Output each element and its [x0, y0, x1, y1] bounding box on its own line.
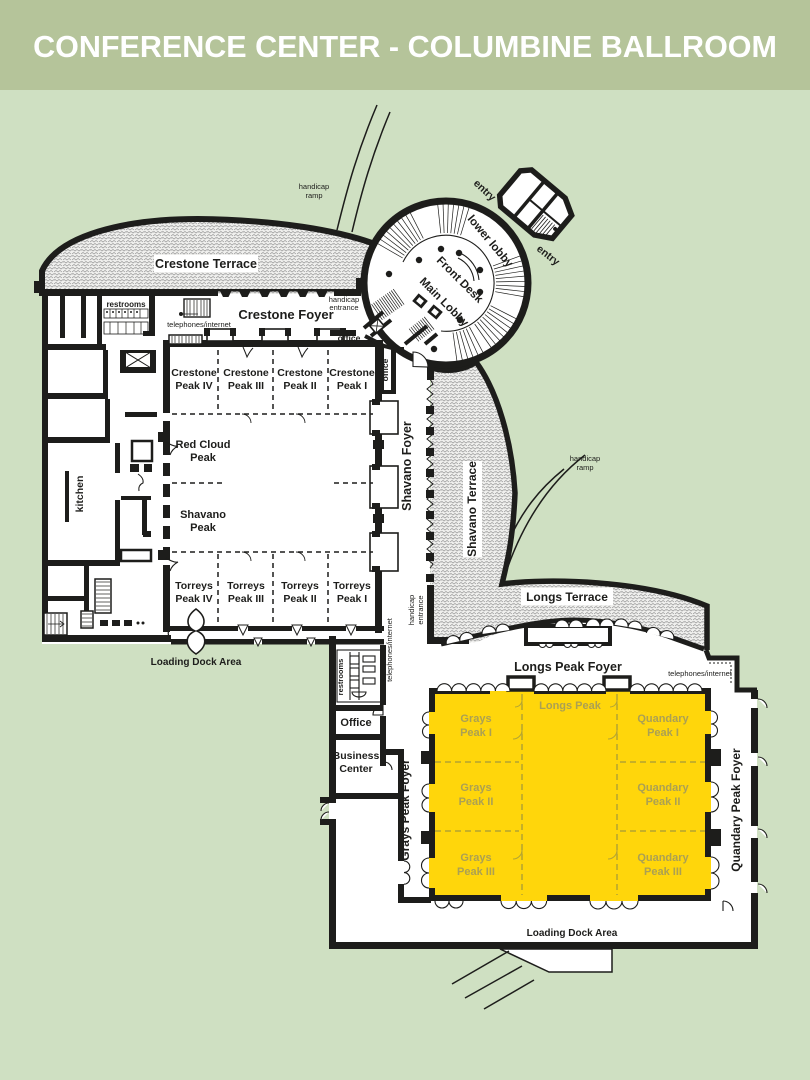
svg-text:Torreys: Torreys	[175, 580, 213, 592]
svg-text:Grays: Grays	[460, 713, 491, 725]
svg-text:Crestone Foyer: Crestone Foyer	[238, 307, 333, 322]
svg-text:Peak III: Peak III	[228, 593, 264, 605]
svg-text:entrance: entrance	[329, 303, 358, 312]
svg-text:CONFERENCE CENTER - COLUMBINE: CONFERENCE CENTER - COLUMBINE BALLROOM	[33, 30, 777, 64]
svg-text:Peak IV: Peak IV	[175, 380, 212, 392]
svg-text:Crestone: Crestone	[171, 367, 217, 379]
svg-text:Peak I: Peak I	[337, 593, 367, 605]
svg-text:Torreys: Torreys	[227, 580, 265, 592]
svg-text:Longs Peak: Longs Peak	[539, 700, 602, 712]
svg-text:Quandary: Quandary	[637, 713, 689, 725]
svg-text:Peak II: Peak II	[646, 796, 681, 808]
svg-text:telephones/internet: telephones/internet	[385, 617, 394, 682]
svg-text:Crestone: Crestone	[329, 367, 375, 379]
svg-text:telephones/internet: telephones/internet	[167, 320, 232, 329]
svg-text:handicap: handicap	[299, 182, 329, 191]
svg-text:restrooms: restrooms	[336, 659, 345, 696]
svg-text:Peak III: Peak III	[228, 380, 264, 392]
svg-text:Crestone: Crestone	[223, 367, 269, 379]
svg-text:Longs Terrace: Longs Terrace	[526, 590, 608, 604]
svg-text:Peak: Peak	[190, 522, 217, 534]
svg-text:handicap: handicap	[407, 595, 416, 625]
svg-text:Quandary: Quandary	[637, 782, 689, 794]
svg-text:Peak I: Peak I	[647, 727, 679, 739]
svg-text:Center: Center	[339, 763, 372, 775]
svg-text:Shavano Foyer: Shavano Foyer	[400, 421, 414, 511]
svg-text:Red Cloud: Red Cloud	[176, 439, 231, 451]
svg-text:Peak II: Peak II	[283, 593, 316, 605]
svg-text:Peak III: Peak III	[644, 866, 682, 878]
svg-text:handicap: handicap	[570, 454, 600, 463]
svg-text:Peak: Peak	[190, 452, 217, 464]
svg-text:Quandary: Quandary	[637, 852, 689, 864]
svg-text:Peak I: Peak I	[337, 380, 367, 392]
svg-text:Torreys: Torreys	[333, 580, 371, 592]
svg-text:Peak II: Peak II	[283, 380, 316, 392]
svg-text:Longs Peak Foyer: Longs Peak Foyer	[514, 660, 622, 674]
svg-text:Loading Dock Area: Loading Dock Area	[527, 928, 618, 939]
svg-text:Crestone Terrace: Crestone Terrace	[155, 257, 257, 271]
svg-text:Peak IV: Peak IV	[175, 593, 212, 605]
svg-text:Shavano Terrace: Shavano Terrace	[465, 461, 479, 557]
svg-text:Shavano: Shavano	[180, 509, 226, 521]
svg-text:Crestone: Crestone	[277, 367, 323, 379]
svg-text:Loading Dock Area: Loading Dock Area	[151, 657, 242, 668]
svg-text:office: office	[338, 333, 361, 343]
svg-text:ramp: ramp	[305, 191, 322, 200]
svg-text:entrance: entrance	[416, 595, 425, 624]
svg-text:Grays: Grays	[460, 782, 491, 794]
svg-text:Torreys: Torreys	[281, 580, 319, 592]
svg-text:Office: Office	[340, 717, 371, 729]
svg-text:Quandary Peak Foyer: Quandary Peak Foyer	[729, 748, 743, 872]
svg-text:office: office	[380, 358, 390, 381]
svg-text:Peak III: Peak III	[457, 866, 495, 878]
svg-text:telephones/internet: telephones/internet	[668, 669, 733, 678]
svg-text:ramp: ramp	[576, 463, 593, 472]
svg-text:Peak II: Peak II	[459, 796, 494, 808]
svg-text:Business: Business	[333, 750, 380, 762]
svg-text:Peak I: Peak I	[460, 727, 492, 739]
svg-text:kitchen: kitchen	[74, 476, 86, 513]
svg-text:Grays Peak Foyer: Grays Peak Foyer	[398, 759, 412, 861]
svg-text:Grays: Grays	[460, 852, 491, 864]
svg-text:restrooms: restrooms	[106, 300, 146, 309]
